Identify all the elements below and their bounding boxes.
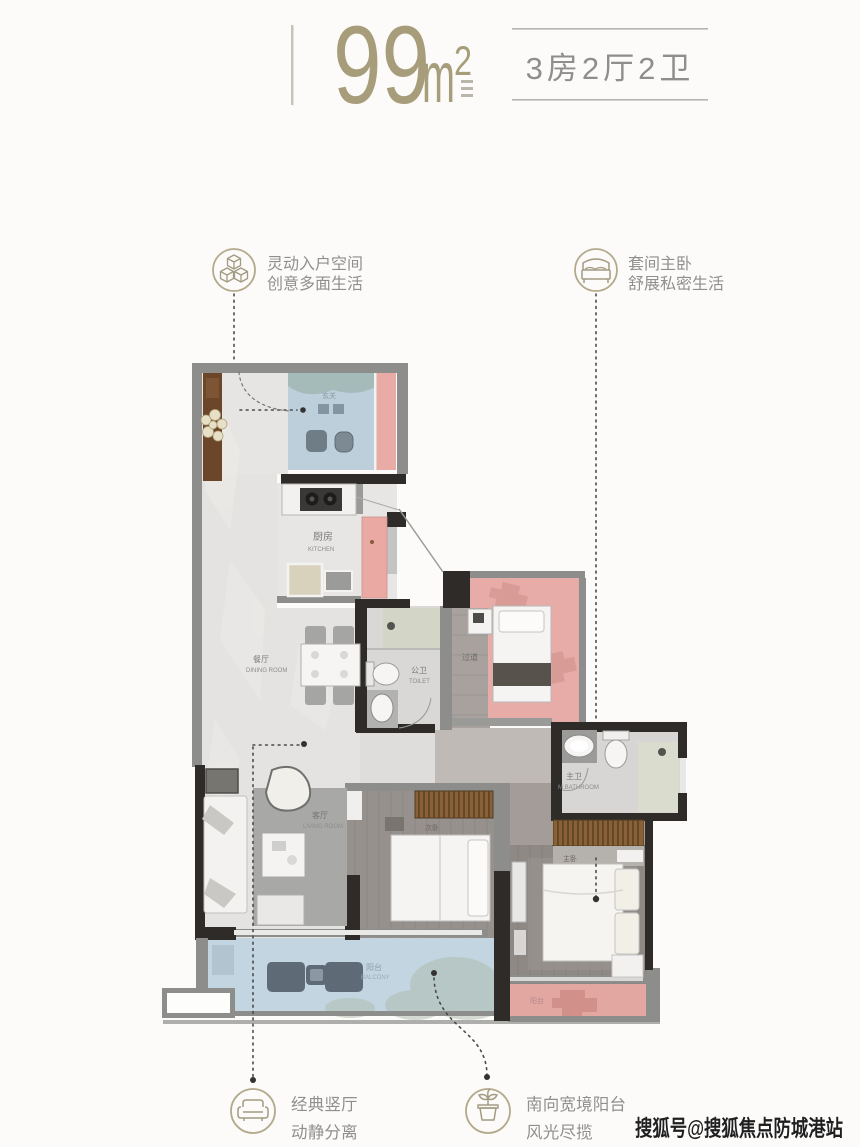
svg-text:BALCONY: BALCONY bbox=[361, 975, 390, 981]
svg-text:动静分离: 动静分离 bbox=[291, 1123, 358, 1142]
svg-text:经典竖厅: 经典竖厅 bbox=[291, 1095, 358, 1114]
svg-text:阳台: 阳台 bbox=[366, 962, 382, 972]
svg-text:风光尽揽: 风光尽揽 bbox=[526, 1123, 593, 1142]
svg-text:m: m bbox=[422, 38, 455, 118]
svg-text:公卫: 公卫 bbox=[411, 666, 427, 675]
svg-text:99: 99 bbox=[333, 4, 430, 127]
svg-text:餐厅: 餐厅 bbox=[253, 655, 269, 664]
svg-text:DINING ROOM: DINING ROOM bbox=[246, 668, 287, 674]
svg-text:创意多面生活: 创意多面生活 bbox=[267, 274, 363, 293]
svg-text:南向宽境阳台: 南向宽境阳台 bbox=[526, 1095, 626, 1114]
svg-text:套间主卧: 套间主卧 bbox=[628, 255, 692, 273]
svg-text:主卫: 主卫 bbox=[566, 771, 582, 781]
svg-text:次卧: 次卧 bbox=[425, 823, 439, 832]
svg-text:舒展私密生活: 舒展私密生活 bbox=[628, 275, 724, 293]
svg-text:TOILET: TOILET bbox=[409, 679, 430, 685]
svg-text:玄关: 玄关 bbox=[322, 391, 336, 400]
svg-text:主卧: 主卧 bbox=[563, 854, 577, 863]
svg-text:KITCHEN: KITCHEN bbox=[308, 547, 334, 553]
svg-text:客厅: 客厅 bbox=[312, 810, 328, 820]
svg-text:3房2厅2卫: 3房2厅2卫 bbox=[526, 51, 695, 86]
svg-text:阳台: 阳台 bbox=[530, 996, 544, 1005]
svg-text:过道: 过道 bbox=[462, 652, 478, 662]
svg-text:搜狐号@搜狐焦点防城港站: 搜狐号@搜狐焦点防城港站 bbox=[635, 1116, 843, 1141]
svg-text:厨房: 厨房 bbox=[313, 530, 333, 543]
svg-text:灵动入户空间: 灵动入户空间 bbox=[267, 255, 363, 273]
svg-text:LIVING ROOM: LIVING ROOM bbox=[303, 824, 343, 830]
svg-text:2: 2 bbox=[454, 37, 472, 84]
